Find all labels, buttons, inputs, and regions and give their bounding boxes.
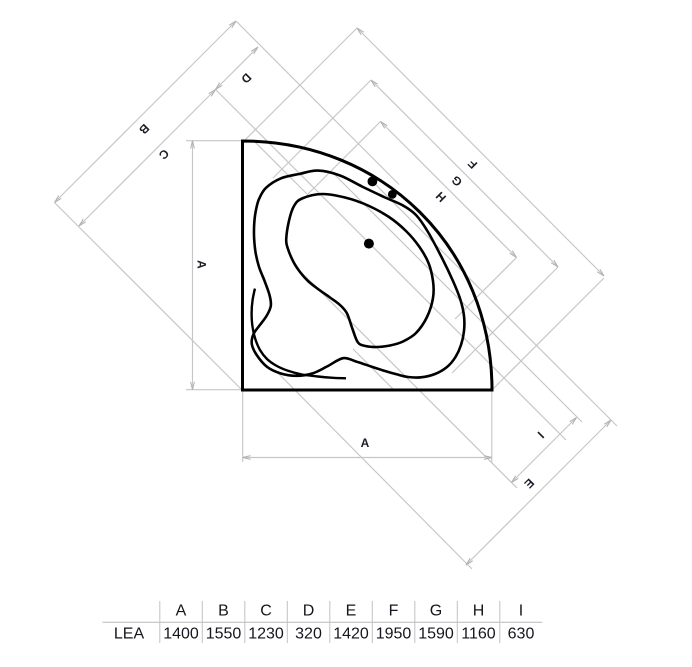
svg-text:H: H	[473, 603, 485, 620]
svg-text:1590: 1590	[418, 626, 454, 643]
svg-text:1950: 1950	[376, 626, 412, 643]
svg-text:320: 320	[295, 626, 322, 643]
svg-text:1550: 1550	[206, 626, 242, 643]
svg-text:E: E	[346, 603, 357, 620]
svg-text:1420: 1420	[333, 626, 369, 643]
svg-text:B: B	[218, 603, 229, 620]
svg-text:F: F	[389, 603, 399, 620]
svg-text:C: C	[260, 603, 272, 620]
svg-text:I: I	[519, 603, 523, 620]
svg-text:A: A	[176, 603, 187, 620]
svg-text:D: D	[303, 603, 315, 620]
svg-text:G: G	[430, 603, 442, 620]
svg-text:LEA: LEA	[114, 626, 145, 643]
svg-text:1400: 1400	[163, 626, 199, 643]
svg-text:1160: 1160	[461, 626, 496, 643]
svg-text:A: A	[361, 436, 370, 450]
svg-text:1230: 1230	[248, 626, 284, 643]
svg-text:630: 630	[508, 626, 535, 643]
svg-text:A: A	[195, 260, 209, 269]
